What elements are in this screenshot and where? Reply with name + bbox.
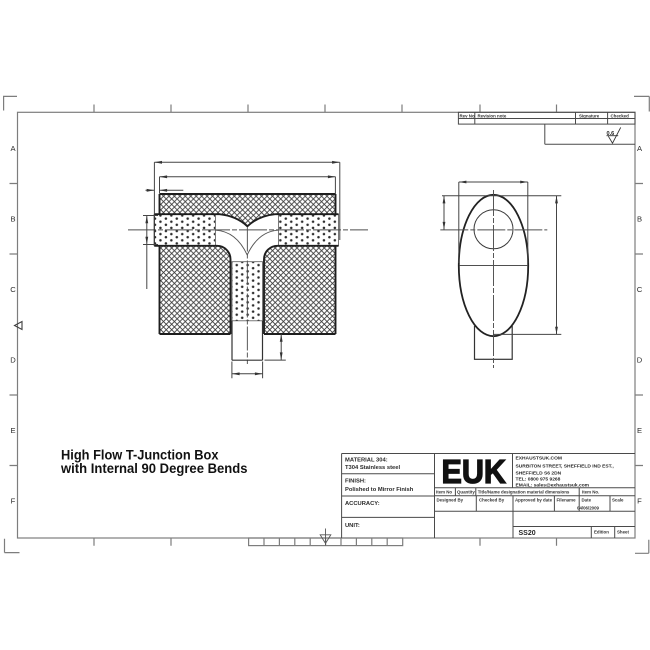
- svg-text:with Internal 90 Degree Bends: with Internal 90 Degree Bends: [60, 461, 247, 476]
- svg-text:SS20: SS20: [519, 530, 536, 537]
- svg-text:Title/Name designation materia: Title/Name designation material dimensio…: [478, 490, 570, 495]
- svg-text:Revision note: Revision note: [478, 114, 507, 119]
- svg-text:High Flow T-Junction Box: High Flow T-Junction Box: [61, 447, 219, 462]
- svg-text:Item No.: Item No.: [582, 490, 599, 495]
- svg-text:TEL: 0800 975 9268: TEL: 0800 975 9268: [516, 476, 561, 482]
- svg-text:E: E: [10, 426, 15, 435]
- svg-text:B: B: [10, 215, 15, 224]
- svg-text:Checked: Checked: [611, 114, 630, 119]
- svg-text:Checked By: Checked By: [479, 498, 505, 503]
- svg-text:Designed By: Designed By: [437, 498, 464, 503]
- svg-text:Quantity: Quantity: [457, 490, 475, 495]
- svg-text:EXHAUSTSUK.COM: EXHAUSTSUK.COM: [516, 455, 562, 461]
- svg-text:SHEFFIELD S6 2DN: SHEFFIELD S6 2DN: [516, 470, 562, 476]
- svg-text:Date: Date: [582, 498, 592, 503]
- svg-text:D: D: [10, 356, 16, 365]
- svg-text:Edition: Edition: [594, 530, 609, 535]
- svg-text:0.6: 0.6: [607, 131, 615, 137]
- svg-text:UNIT:: UNIT:: [345, 523, 360, 529]
- svg-text:Polished to Mirror Finish: Polished to Mirror Finish: [345, 487, 414, 493]
- svg-text:C: C: [637, 285, 643, 294]
- svg-text:Sheet: Sheet: [617, 530, 629, 535]
- svg-text:Filename: Filename: [557, 498, 577, 503]
- svg-text:C: C: [10, 285, 16, 294]
- svg-text:FINISH:: FINISH:: [345, 479, 366, 485]
- svg-text:F: F: [11, 497, 16, 506]
- svg-text:F: F: [637, 497, 642, 506]
- svg-text:Signature: Signature: [579, 114, 600, 119]
- svg-text:D: D: [637, 356, 643, 365]
- svg-text:04/06/2009: 04/06/2009: [577, 506, 600, 511]
- svg-text:SURBITON STREET, SHEFFIELD IND: SURBITON STREET, SHEFFIELD IND EST.,: [516, 464, 615, 470]
- svg-text:T304 Stainless steel: T304 Stainless steel: [345, 465, 400, 471]
- svg-text:E: E: [637, 426, 642, 435]
- svg-text:Approved by date: Approved by date: [515, 498, 553, 503]
- svg-text:Item No: Item No: [436, 490, 452, 495]
- svg-text:EUK: EUK: [442, 454, 507, 491]
- svg-text:Rev No: Rev No: [460, 113, 475, 118]
- svg-text:ACCURACY:: ACCURACY:: [345, 501, 380, 507]
- svg-text:B: B: [637, 215, 642, 224]
- svg-text:Scale: Scale: [612, 498, 624, 503]
- svg-text:MATERIAL 304:: MATERIAL 304:: [345, 458, 388, 464]
- svg-text:EMAIL: sales@exhaustsuk.com: EMAIL: sales@exhaustsuk.com: [516, 483, 590, 489]
